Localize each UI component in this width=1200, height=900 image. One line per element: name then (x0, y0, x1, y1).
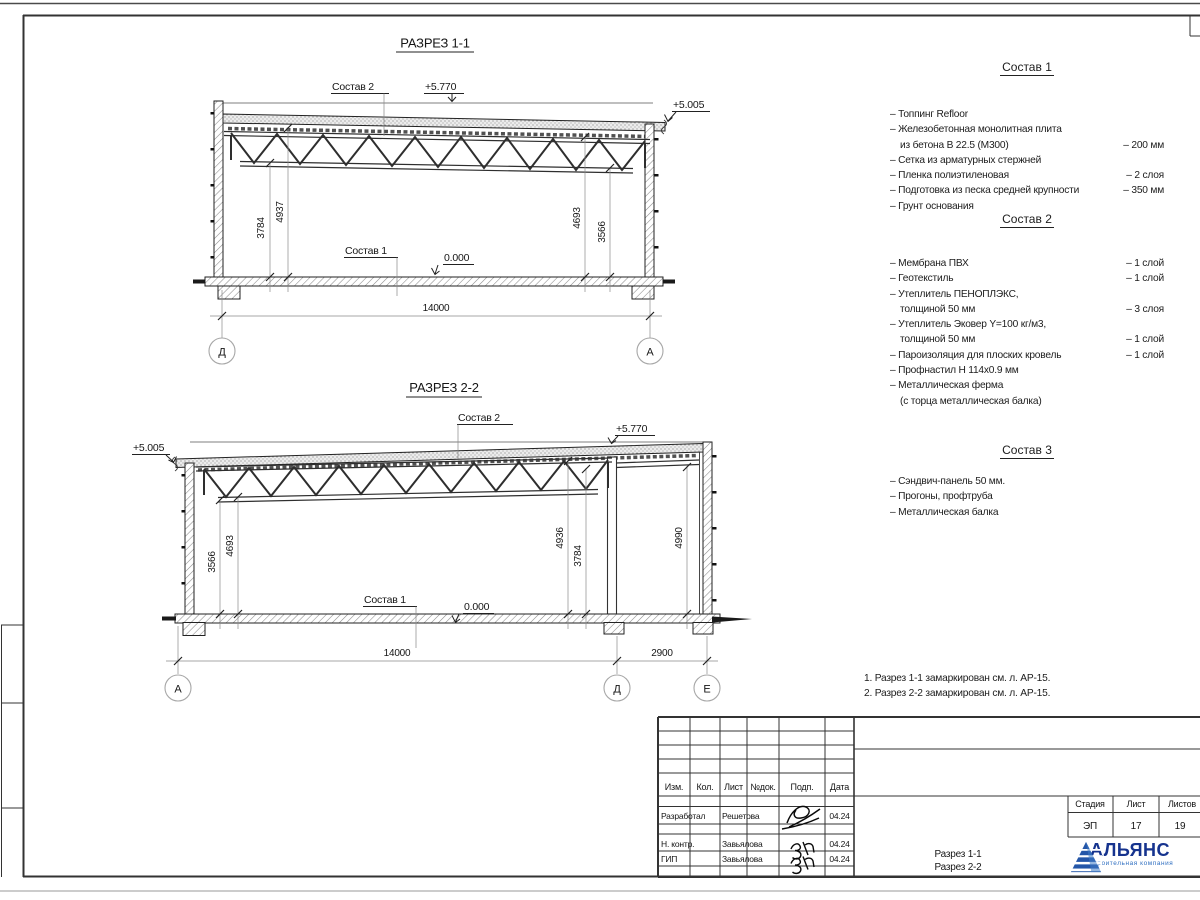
dim-label-span: 14000 (384, 648, 411, 659)
dim-label: 3784 (256, 217, 267, 239)
svg-text:Дата: Дата (830, 782, 849, 792)
list-item: толщиной 50 мм– 1 слой (890, 332, 1164, 347)
wall-panel-joints (182, 455, 717, 602)
dim-label: 4693 (572, 207, 583, 229)
title-block-headers: Изм. Кол. Лист №док. Подп. Дата (665, 782, 849, 792)
company-logo: АЛЬЯНС строительная компания (1070, 840, 1200, 882)
elevation-mark: +5.770 (616, 423, 648, 435)
axis-letter: А (174, 684, 182, 696)
note-line: 2. Разрез 2-2 замаркирован см. л. АР-15. (864, 687, 1050, 702)
section-2-2-labels: РАЗРЕЗ 2-2 Состав 2 +5.770 +5.005 Состав… (132, 380, 655, 648)
right-footing (693, 623, 713, 635)
name: Решетова (722, 811, 760, 821)
list-item: – Утеплитель ПЕНОПЛЭКС, (890, 287, 1164, 302)
section-2-2-drawing: 3566 4693 4936 3784 4990 14000 2900 А Д … (132, 380, 752, 701)
svg-text:Разрез 1-1: Разрез 1-1 (934, 849, 982, 860)
section-1-1-drawing: 3784 4937 4693 3566 14000 Д А РАЗРЕЗ 1-1… (193, 36, 710, 365)
svg-text:Подп.: Подп. (791, 782, 814, 792)
section-1-1-axes: Д А (209, 338, 663, 364)
right-wall (645, 124, 654, 283)
section-2-2-dimensions: 3566 4693 4936 3784 4990 14000 2900 (166, 457, 718, 674)
signature-nkontr (791, 842, 814, 859)
section-2-2-axes: А Д Е (165, 675, 720, 701)
right-wall (703, 442, 712, 614)
list-item: – Металлическая ферма (890, 378, 1164, 393)
elevation-mark: +5.005 (673, 99, 705, 111)
floor-slab (175, 614, 720, 623)
floor-slab (205, 277, 663, 286)
right-bay-beam (616, 460, 699, 468)
title-block-rows: Разработал Решетова 04.24 Н. контр. Завь… (661, 811, 850, 864)
list-item: толщиной 50 мм– 3 слоя (890, 302, 1164, 317)
section-title: РАЗРЕЗ 2-2 (409, 380, 479, 395)
axis-letter: Е (703, 684, 710, 696)
date: 04.24 (829, 839, 850, 849)
svg-text:19: 19 (1175, 821, 1186, 832)
section-title: РАЗРЕЗ 1-1 (400, 36, 470, 51)
left-footing (183, 623, 205, 636)
dim-label-span: 14000 (423, 303, 450, 314)
left-margin-cells (1, 625, 23, 877)
role: Н. контр. (661, 839, 694, 849)
list-item: – Профнастил Н 114х0.9 мм (890, 363, 1164, 378)
role: Разработал (661, 811, 706, 821)
list-item: – Геотекстиль– 1 слой (890, 271, 1164, 286)
list-item: – Утеплитель Эковер Y=100 кг/м3, (890, 317, 1164, 332)
svg-text:Лист: Лист (1127, 799, 1146, 809)
dim-label: 4693 (225, 535, 236, 557)
svg-text:Листов: Листов (1168, 799, 1196, 809)
dim-label: 4936 (555, 527, 566, 549)
composition-list-1: Состав 1 – Топпинг Refloor – Железобетон… (890, 60, 1164, 214)
logo-subtitle: строительная компания (1090, 860, 1173, 867)
dim-label: 4937 (275, 201, 286, 223)
dim-label-span2: 2900 (651, 648, 673, 659)
composition-title: Состав 3 (890, 443, 1164, 457)
list-item: – Металлическая балка (890, 505, 1164, 520)
dim-label: 3784 (573, 545, 584, 567)
dim-label: 4990 (674, 527, 685, 549)
doc-name: Разрез 1-1 Разрез 2-2 (934, 849, 982, 873)
left-wall (185, 463, 194, 614)
svg-text:№док.: №док. (750, 782, 775, 792)
elevation-mark: 0.000 (464, 601, 490, 613)
elevation-mark: +5.005 (133, 442, 165, 454)
svg-text:Изм.: Изм. (665, 782, 683, 792)
list-item: – Сетка из арматурных стержней (890, 153, 1164, 168)
stage-table: Стадия Лист Листов ЭП 17 19 (1075, 799, 1196, 832)
dim-label: 3566 (207, 551, 218, 573)
drawing-sheet: 3784 4937 4693 3566 14000 Д А РАЗРЕЗ 1-1… (0, 0, 1200, 900)
composition-list-2: Состав 2 – Мембрана ПВХ– 1 слой – Геотек… (890, 212, 1164, 409)
composition-roof-label: Состав 2 (332, 81, 374, 93)
composition-list-3: Состав 3 – Сэндвич-панель 50 мм. – Прого… (890, 443, 1164, 520)
elevation-mark: 0.000 (444, 252, 470, 264)
right-footing (632, 286, 654, 299)
list-item: (с торца металлическая балка) (890, 394, 1164, 409)
axis-letter: А (646, 347, 654, 359)
list-item: – Пленка полиэтиленовая– 2 слоя (890, 168, 1164, 183)
list-item: – Прогоны, профтруба (890, 489, 1164, 504)
composition-floor-label: Состав 1 (345, 245, 387, 257)
date: 04.24 (829, 854, 850, 864)
composition-roof-label: Состав 2 (458, 412, 500, 424)
list-item: – Топпинг Refloor (890, 107, 1164, 122)
name: Завьялова (722, 839, 763, 849)
left-wall (214, 101, 223, 283)
notes: 1. Разрез 1-1 замаркирован см. л. АР-15.… (864, 672, 1050, 701)
logo-name: АЛЬЯНС (1090, 840, 1173, 860)
role: ГИП (661, 854, 677, 864)
left-footing (218, 286, 240, 299)
list-item: – Сэндвич-панель 50 мм. (890, 474, 1164, 489)
svg-text:Стадия: Стадия (1075, 799, 1105, 809)
composition-floor-label: Состав 1 (364, 594, 406, 606)
svg-text:Лист: Лист (724, 782, 743, 792)
svg-text:Разрез 2-2: Разрез 2-2 (934, 862, 982, 873)
list-item: – Подготовка из песка средней крупности–… (890, 183, 1164, 198)
section-1-1-dimensions: 3784 4937 4693 3566 14000 (210, 124, 662, 338)
list-item: из бетона В 22.5 (М300)– 200 мм (890, 138, 1164, 153)
dim-label: 3566 (597, 221, 608, 243)
svg-text:17: 17 (1131, 821, 1142, 832)
list-item: – Мембрана ПВХ– 1 слой (890, 256, 1164, 271)
name: Завьялова (722, 854, 763, 864)
composition-title: Состав 2 (890, 212, 1164, 226)
list-item: – Пароизоляция для плоских кровель– 1 сл… (890, 348, 1164, 363)
signature-gip (791, 857, 814, 874)
signatures (782, 806, 820, 873)
signature-razrabotal (782, 806, 820, 829)
date: 04.24 (829, 811, 850, 821)
svg-text:Кол.: Кол. (696, 782, 713, 792)
svg-text:ЭП: ЭП (1083, 821, 1097, 832)
axis-letter: Д (613, 684, 621, 696)
axis-letter: Д (218, 347, 226, 359)
composition-title: Состав 1 (890, 60, 1164, 74)
elevation-mark: +5.770 (425, 81, 457, 93)
list-item: – Железобетонная монолитная плита (890, 122, 1164, 137)
note-line: 1. Разрез 1-1 замаркирован см. л. АР-15. (864, 672, 1050, 687)
mid-footing (604, 623, 624, 635)
